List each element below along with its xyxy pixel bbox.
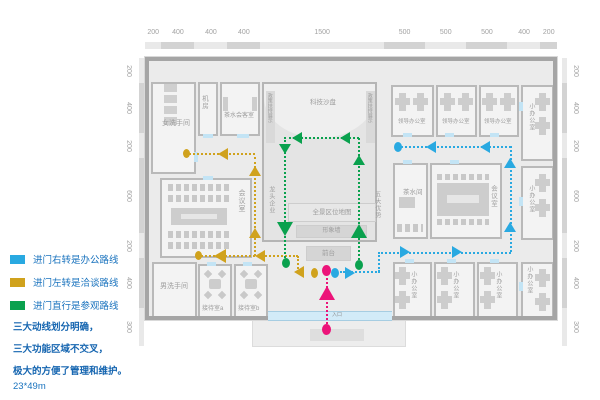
legend-item-negotiation: 进门左转是洽谈路线 xyxy=(10,276,119,288)
label-leader-office-1: 领导办公室 xyxy=(398,119,426,125)
top-dimension-ruler xyxy=(145,42,557,49)
label-reception-a: 接待室a xyxy=(202,306,223,313)
visit-route-arrow-up xyxy=(351,224,367,238)
furniture-desk xyxy=(539,293,546,311)
label-leader-office-3: 领导办公室 xyxy=(484,119,512,125)
dimension-value: 300 xyxy=(125,321,132,333)
door xyxy=(243,262,252,266)
dimension-segment xyxy=(145,42,161,49)
furniture-chair-row xyxy=(168,242,230,249)
visit-route-arrow-up xyxy=(353,155,365,165)
dimension-value: 200 xyxy=(572,65,579,77)
door xyxy=(519,102,523,111)
image-wall-label: 形象墙 xyxy=(322,228,340,235)
office-route-arrow-right xyxy=(400,246,410,258)
dimension-segment xyxy=(139,158,144,233)
note-line-1: 三大动线划分明确， xyxy=(13,319,99,333)
furniture-desk xyxy=(462,93,469,111)
office-route-arrow-left xyxy=(426,141,436,153)
dimension-value: 400 xyxy=(205,29,217,36)
furniture-desk xyxy=(484,291,491,309)
entry-route-outside-dot xyxy=(322,324,331,335)
visit-route-arrow-down xyxy=(277,222,293,236)
negotiation-route-line xyxy=(297,256,299,273)
furniture-sofa xyxy=(252,97,257,111)
dimension-value: 200 xyxy=(572,140,579,152)
front-desk-label: 前台 xyxy=(322,250,335,257)
negotiation-route-end-dot xyxy=(195,251,202,260)
dimension-value: 200 xyxy=(147,29,159,36)
label-small-office-b3: 小办公室 xyxy=(494,271,501,299)
door xyxy=(450,160,459,164)
furniture-desk xyxy=(539,199,546,217)
office-route-arrow-right xyxy=(345,267,355,279)
floor-plan-canvas: 2004004004001500500500500400200 20040020… xyxy=(0,0,600,400)
furniture-chair-row xyxy=(437,174,489,180)
entry-route-junction-dot xyxy=(322,265,331,276)
office-route-start-dot xyxy=(331,268,339,278)
label-five-advantages: 五大优势 xyxy=(373,191,380,219)
furniture-desk xyxy=(444,93,451,111)
negotiation-route-line xyxy=(198,255,298,257)
door xyxy=(203,134,213,138)
negotiation-route-end-dot xyxy=(183,149,190,158)
furniture-table-inlay xyxy=(181,214,217,219)
visit-route-arrow-down xyxy=(279,144,291,154)
furniture-desk xyxy=(399,267,406,285)
dimension-value: 200 xyxy=(125,240,132,252)
dimension-segment xyxy=(139,133,144,158)
negotiation-route-start-dot xyxy=(311,268,318,278)
dimension-segment xyxy=(562,133,567,158)
furniture-desk xyxy=(399,93,406,111)
furniture-desk xyxy=(484,267,491,285)
office-route-line xyxy=(378,252,511,254)
note-line-3: 极大的方便了管理和维护。 xyxy=(13,363,127,377)
room-leader-office-2 xyxy=(436,85,477,137)
door xyxy=(237,134,249,138)
dimension-value: 200 xyxy=(543,29,555,36)
dimension-value: 600 xyxy=(125,190,132,202)
entrance-label: 入口 xyxy=(332,313,342,319)
room-leader-office-3 xyxy=(479,85,519,137)
office-route-arrow-left xyxy=(480,141,490,153)
negotiation-route-arrow-left xyxy=(218,148,228,160)
dimension-segment xyxy=(507,42,540,49)
entrance-glass-door xyxy=(268,311,392,321)
dimension-segment xyxy=(562,308,567,346)
office-route-line xyxy=(340,271,380,273)
dimension-segment xyxy=(139,308,144,346)
entry-route-arrow-up xyxy=(319,286,335,300)
negotiation-route-arrow-up xyxy=(249,166,261,176)
furniture-round-table xyxy=(245,279,257,289)
label-small-office-b1: 小办公室 xyxy=(409,271,416,299)
office-route-arrow-up xyxy=(504,222,516,232)
dimension-value: 400 xyxy=(572,278,579,290)
label-machine-room: 机房 xyxy=(200,95,207,110)
dimension-segment xyxy=(139,233,144,258)
door xyxy=(405,259,414,263)
dimension-value: 400 xyxy=(518,29,530,36)
legend-label-visit: 进门直行是参观路线 xyxy=(33,298,119,312)
negotiation-route-arrow-up xyxy=(249,228,261,238)
legend-item-visit: 进门直行是参观路线 xyxy=(10,299,119,311)
visit-route-start-dot xyxy=(355,260,363,270)
furniture-desk xyxy=(399,291,406,309)
panorama-map-wall: 全景区位地图 xyxy=(288,203,376,222)
furniture-table-inlay xyxy=(447,195,479,203)
room-leader-office-1 xyxy=(391,85,434,137)
dimension-segment xyxy=(540,42,556,49)
office-route-end-dot xyxy=(394,142,402,152)
label-tech-sandtable: 科技沙盘 xyxy=(310,99,336,106)
office-route-swatch xyxy=(10,255,25,264)
panorama-map-label: 全景区位地图 xyxy=(313,209,352,216)
visit-route-swatch xyxy=(10,301,25,310)
dimension-value: 600 xyxy=(572,190,579,202)
office-route-arrow-right xyxy=(452,246,462,258)
dimension-value: 200 xyxy=(572,240,579,252)
door xyxy=(519,197,523,206)
dimension-segment xyxy=(227,42,260,49)
furniture-desk xyxy=(441,291,448,309)
label-meeting-left: 会议室 xyxy=(237,189,245,213)
entrance-step xyxy=(310,329,364,341)
dimension-segment xyxy=(562,258,567,308)
dimension-value: 500 xyxy=(440,29,452,36)
furniture-desk xyxy=(539,174,546,192)
dimension-segment xyxy=(425,42,466,49)
furniture-desk xyxy=(504,93,511,111)
dimension-segment xyxy=(139,58,144,83)
dimension-value: 300 xyxy=(572,321,579,333)
note-line-2: 三大功能区域不交叉， xyxy=(13,341,108,355)
legend-item-office: 进门右转是办公路线 xyxy=(10,253,119,265)
right-dimension-ruler xyxy=(562,58,567,346)
dimension-segment xyxy=(260,42,384,49)
label-policy-display-left: 政策扶持展示 xyxy=(266,93,272,123)
dimension-segment xyxy=(562,158,567,233)
visit-route-arrow-left xyxy=(292,132,302,144)
furniture-desk xyxy=(417,93,424,111)
dimension-segment xyxy=(562,83,567,133)
dimension-segment xyxy=(466,42,507,49)
building-plan: 全景区位地图 形象墙 前台 xyxy=(145,57,557,320)
door xyxy=(490,259,499,263)
size-note: 23*49m xyxy=(13,381,46,392)
label-small-office-rt: 小办公室 xyxy=(527,103,534,131)
dimension-value: 400 xyxy=(125,278,132,290)
furniture-round-table xyxy=(209,279,221,289)
negotiation-route-arrow-left xyxy=(294,266,304,278)
label-women-restroom: 女洗手间 xyxy=(162,120,190,128)
dimension-value: 500 xyxy=(399,29,411,36)
negotiation-route-swatch xyxy=(10,278,25,287)
door xyxy=(447,259,456,263)
dimension-value: 200 xyxy=(125,65,132,77)
label-meeting-right: 会议室 xyxy=(489,185,496,208)
dimension-segment xyxy=(562,233,567,258)
furniture-desk xyxy=(441,267,448,285)
room-small-office-right-mid xyxy=(521,166,554,240)
dimension-segment xyxy=(161,42,194,49)
negotiation-route-arrow-left xyxy=(255,250,265,262)
visit-route-line xyxy=(284,137,286,258)
office-route-arrow-up xyxy=(504,158,516,168)
dimension-segment xyxy=(139,83,144,133)
furniture-chair-row xyxy=(168,231,230,238)
label-leading-enterprises: 龙头企业 xyxy=(267,186,274,214)
furniture-desk xyxy=(539,117,546,135)
dimension-segment xyxy=(139,258,144,308)
door xyxy=(403,160,412,164)
left-dimension-ruler xyxy=(139,58,144,346)
label-tea-reception: 茶水会客室 xyxy=(224,113,254,120)
dimension-value: 1500 xyxy=(314,29,330,36)
door xyxy=(490,133,499,137)
dimension-value: 400 xyxy=(125,102,132,114)
furniture-chair-row xyxy=(437,219,489,225)
office-route-line xyxy=(398,146,511,148)
label-men-restroom: 男洗手间 xyxy=(160,283,188,291)
dimension-segment xyxy=(384,42,425,49)
dimension-value: 200 xyxy=(125,140,132,152)
label-small-office-rm: 小办公室 xyxy=(527,185,534,213)
furniture-desk xyxy=(486,93,493,111)
negotiation-route-arrow-left xyxy=(214,249,226,263)
dimension-value: 400 xyxy=(238,29,250,36)
door xyxy=(403,133,412,137)
dimension-value: 400 xyxy=(172,29,184,36)
label-reception-b: 接待室b xyxy=(238,306,259,313)
furniture-sofa xyxy=(223,97,228,111)
label-leader-office-2: 领导办公室 xyxy=(442,119,470,125)
door xyxy=(445,133,454,137)
legend-label-negotiation: 进门左转是洽谈路线 xyxy=(33,275,119,289)
label-small-office-b2: 小办公室 xyxy=(451,271,458,299)
dimension-value: 500 xyxy=(481,29,493,36)
furniture-cabinet xyxy=(397,224,423,232)
label-small-office-rb: 小办公室 xyxy=(525,266,532,294)
legend-label-office: 进门右转是办公路线 xyxy=(33,252,119,266)
visit-route-end-dot xyxy=(282,258,290,268)
dimension-segment xyxy=(194,42,227,49)
label-policy-display-right: 政策扶持展示 xyxy=(366,93,372,123)
visit-route-arrow-left xyxy=(340,132,350,144)
office-route-line xyxy=(378,252,380,272)
entry-route-line xyxy=(326,278,328,324)
door xyxy=(519,282,523,291)
front-desk: 前台 xyxy=(306,246,351,261)
furniture-table xyxy=(399,197,415,208)
label-tea-room: 茶水间 xyxy=(403,189,423,196)
furniture-desk xyxy=(539,269,546,287)
dimension-value: 400 xyxy=(572,102,579,114)
furniture-desk xyxy=(539,93,546,111)
door xyxy=(203,176,213,180)
furniture-chair-row xyxy=(168,195,230,202)
dimension-segment xyxy=(562,58,567,83)
furniture-chair-row xyxy=(168,184,230,191)
